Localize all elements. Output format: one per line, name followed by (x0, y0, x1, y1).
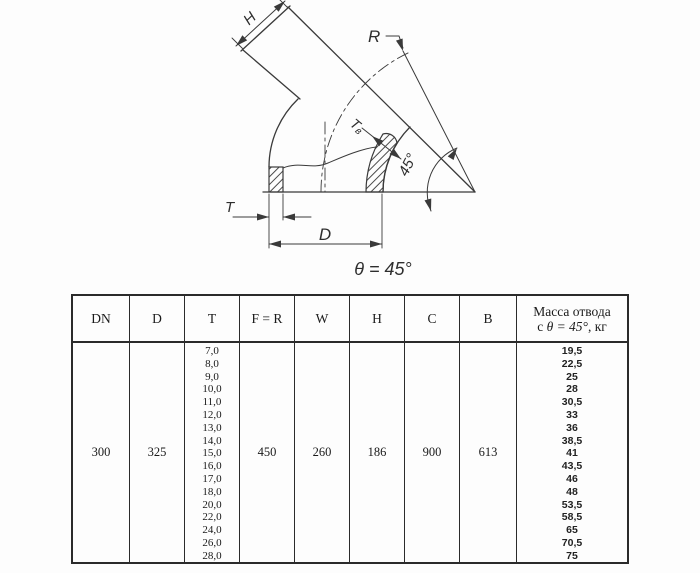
value-c: 900 (405, 343, 459, 562)
header-t: T (185, 296, 239, 343)
left-wall-section-hatched (269, 167, 283, 192)
d-arrow-right (370, 241, 382, 248)
angle-arrow-bottom (425, 199, 435, 212)
t-values-list: 7,08,09,010,011,012,013,014,015,016,017,… (185, 343, 239, 563)
header-b: B (460, 296, 516, 343)
column-w: W 260 (294, 296, 349, 562)
mass-header-line1: Масса отвода (533, 304, 611, 319)
t-value: 22,0 (185, 511, 239, 524)
column-dn: DN 300 (73, 296, 129, 562)
mass-header-line2-theta: θ = 45° (547, 319, 588, 334)
mass-value: 30,5 (517, 396, 627, 409)
pipe-inner-wall-line (243, 50, 300, 99)
t-arrow-left (257, 214, 269, 221)
column-fr: F = R 450 (239, 296, 294, 562)
mass-value: 41 (517, 447, 627, 460)
column-h: H 186 (349, 296, 404, 562)
t-arrow-right (283, 214, 295, 221)
outer-bend-arc (269, 99, 298, 167)
t-value: 14,0 (185, 435, 239, 448)
column-t: T 7,08,09,010,011,012,013,014,015,016,01… (184, 296, 239, 562)
d-arrow-left (269, 241, 281, 248)
t-value: 16,0 (185, 460, 239, 473)
d-dim-label: D (319, 225, 331, 244)
mass-value: 58,5 (517, 511, 627, 524)
t-value: 24,0 (185, 524, 239, 537)
mass-value: 25 (517, 371, 627, 384)
value-fr: 450 (240, 343, 294, 562)
header-dn: DN (73, 296, 129, 343)
elbow-drawing: H R Тв 45° T D θ = 45° (0, 0, 700, 292)
t-dim-label: T (225, 199, 236, 216)
header-fr: F = R (240, 296, 294, 343)
column-d: D 325 (129, 296, 184, 562)
column-b: B 613 (459, 296, 516, 562)
page: H R Тв 45° T D θ = 45° DN 300 D 325 T 7,… (0, 0, 700, 573)
column-mass: Масса отвода с θ = 45°, кг 19,522,525283… (516, 296, 627, 562)
value-w: 260 (295, 343, 349, 562)
t-value: 12,0 (185, 409, 239, 422)
arrowheads (234, 0, 460, 248)
value-dn: 300 (73, 343, 129, 562)
mass-value: 65 (517, 524, 627, 537)
tb-dim-label: Тв (346, 115, 368, 137)
header-d: D (130, 296, 184, 343)
r-arrowhead (396, 39, 406, 53)
t-value: 28,0 (185, 550, 239, 563)
t-value: 15,0 (185, 447, 239, 460)
t-value: 10,0 (185, 383, 239, 396)
value-d: 325 (130, 343, 184, 562)
header-mass: Масса отвода с θ = 45°, кг (517, 296, 627, 343)
mass-value: 70,5 (517, 537, 627, 550)
r-dim-label: R (368, 27, 380, 46)
mass-value: 36 (517, 422, 627, 435)
t-value: 11,0 (185, 396, 239, 409)
t-value: 26,0 (185, 537, 239, 550)
break-line (283, 147, 376, 168)
column-c: C 900 (404, 296, 459, 562)
t-value: 8,0 (185, 358, 239, 371)
mass-header-line2-post: , кг (588, 319, 607, 334)
mass-value: 38,5 (517, 435, 627, 448)
t-value: 7,0 (185, 345, 239, 358)
h-dim-label: H (240, 9, 260, 29)
t-value: 9,0 (185, 371, 239, 384)
mass-header-line2-pre: с (537, 319, 546, 334)
mass-value: 33 (517, 409, 627, 422)
mass-header-line2: с θ = 45°, кг (537, 319, 607, 334)
header-c: C (405, 296, 459, 343)
header-h: H (350, 296, 404, 343)
t-value: 17,0 (185, 473, 239, 486)
mass-value: 48 (517, 486, 627, 499)
mass-value: 53,5 (517, 499, 627, 512)
mass-value: 19,5 (517, 345, 627, 358)
t-value: 18,0 (185, 486, 239, 499)
theta-equation-label: θ = 45° (354, 259, 412, 279)
mass-value: 75 (517, 550, 627, 563)
dimensions-table: DN 300 D 325 T 7,08,09,010,011,012,013,0… (71, 294, 629, 564)
mass-value: 22,5 (517, 358, 627, 371)
mass-values-list: 19,522,5252830,5333638,54143,5464853,558… (517, 343, 627, 563)
mass-value: 43,5 (517, 460, 627, 473)
mass-value: 46 (517, 473, 627, 486)
value-h: 186 (350, 343, 404, 562)
t-value: 20,0 (185, 499, 239, 512)
t-value: 13,0 (185, 422, 239, 435)
angle-45-label: 45° (395, 151, 420, 179)
value-b: 613 (460, 343, 516, 562)
header-w: W (295, 296, 349, 343)
mass-value: 28 (517, 383, 627, 396)
